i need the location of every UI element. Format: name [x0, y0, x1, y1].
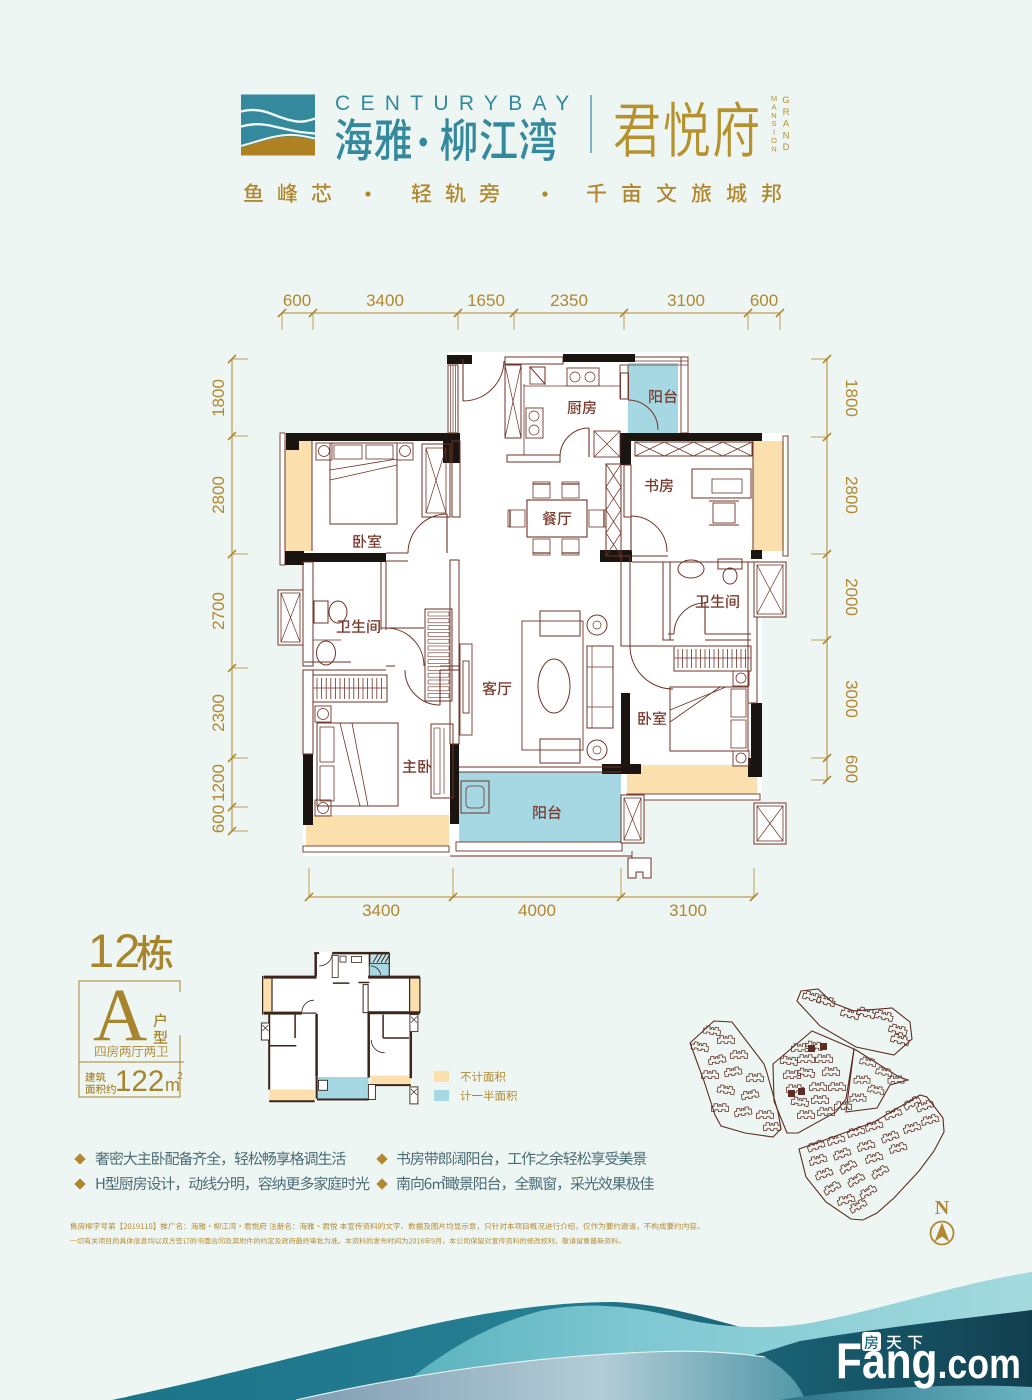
svg-text:600: 600 — [209, 805, 228, 833]
svg-text:N: N — [935, 1197, 950, 1219]
svg-text:2350: 2350 — [550, 291, 588, 310]
svg-text:G: G — [782, 95, 789, 106]
svg-text:600: 600 — [283, 291, 311, 310]
svg-text:2800: 2800 — [209, 476, 228, 514]
svg-text:2000: 2000 — [842, 578, 861, 616]
svg-text:600: 600 — [842, 755, 861, 783]
svg-text:1800: 1800 — [209, 379, 228, 417]
svg-text:N: N — [783, 130, 790, 141]
svg-text:12: 12 — [88, 924, 140, 977]
svg-text:600: 600 — [750, 291, 778, 310]
svg-text:122: 122 — [115, 1065, 164, 1098]
svg-text:CENTURYBAY: CENTURYBAY — [335, 92, 580, 115]
svg-text:3100: 3100 — [667, 291, 705, 310]
svg-text:2300: 2300 — [209, 694, 228, 732]
svg-text:N: N — [771, 144, 776, 153]
svg-text:3100: 3100 — [669, 901, 707, 920]
svg-text:2800: 2800 — [842, 476, 861, 514]
svg-text:A: A — [783, 119, 790, 130]
svg-text:1800: 1800 — [842, 379, 861, 417]
svg-text:3400: 3400 — [366, 291, 404, 310]
svg-text:3400: 3400 — [362, 901, 400, 920]
svg-text:1200: 1200 — [209, 764, 228, 802]
svg-text:A: A — [93, 974, 147, 1057]
svg-text:R: R — [783, 107, 790, 118]
svg-text:2700: 2700 — [209, 592, 228, 630]
svg-text:2: 2 — [177, 1070, 183, 1082]
svg-text:3000: 3000 — [842, 680, 861, 718]
svg-text:D: D — [783, 142, 790, 153]
svg-text:4000: 4000 — [518, 901, 556, 920]
svg-text:1650: 1650 — [467, 291, 505, 310]
